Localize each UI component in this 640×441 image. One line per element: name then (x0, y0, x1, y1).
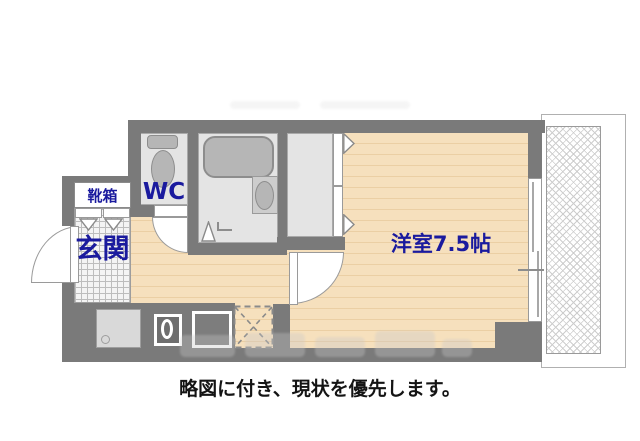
closet-door-panel (333, 133, 343, 186)
closet-door-panel (333, 186, 343, 237)
kitchen-sink-icon (96, 309, 141, 348)
toilet-tank-icon (147, 135, 178, 149)
watermark-top (230, 100, 430, 112)
shoe-cabinet-door (75, 208, 102, 218)
bath-door-mark (217, 222, 219, 231)
kitchen-appliance (192, 311, 232, 348)
wall-left-upper (62, 188, 74, 226)
window-center-tick (518, 269, 544, 271)
entrance-label: 玄関 (74, 229, 131, 263)
shoe-box-label: 靴箱 (74, 183, 131, 207)
bath-door-swing-icon (201, 221, 216, 242)
wall-right-top (528, 133, 542, 178)
wall-bottom (62, 348, 495, 362)
wc-door-panel (154, 205, 188, 217)
wall-below-closet (277, 237, 345, 250)
wc-label: WC (140, 179, 188, 205)
bathtub-icon (203, 136, 274, 178)
closet (287, 133, 333, 237)
wall-top (128, 120, 545, 133)
window-sash (537, 251, 539, 317)
wall-below-bath (188, 243, 287, 255)
shoe-cabinet-door (103, 208, 130, 218)
main-room-label: 洋室7.5帖 (345, 231, 537, 255)
wall-door-stub (273, 304, 290, 348)
washbasin-icon (255, 181, 274, 210)
room-door-panel (289, 252, 298, 305)
stove-icon (154, 314, 182, 346)
balcony-deck (546, 126, 601, 354)
closet-door-swing-icon (343, 133, 355, 154)
wall-bottom-right (495, 322, 542, 362)
wall-below-wc (128, 205, 155, 217)
stove-burner-icon (161, 319, 173, 339)
bath-door-mark (217, 229, 232, 231)
wall-bath-right (278, 133, 287, 243)
caption: 略図に付き、現状を優先します。 (0, 374, 640, 401)
refrigerator-space-icon (233, 305, 274, 349)
sink-drain-icon (101, 335, 110, 344)
wall-wc-bath-divider (188, 133, 198, 243)
